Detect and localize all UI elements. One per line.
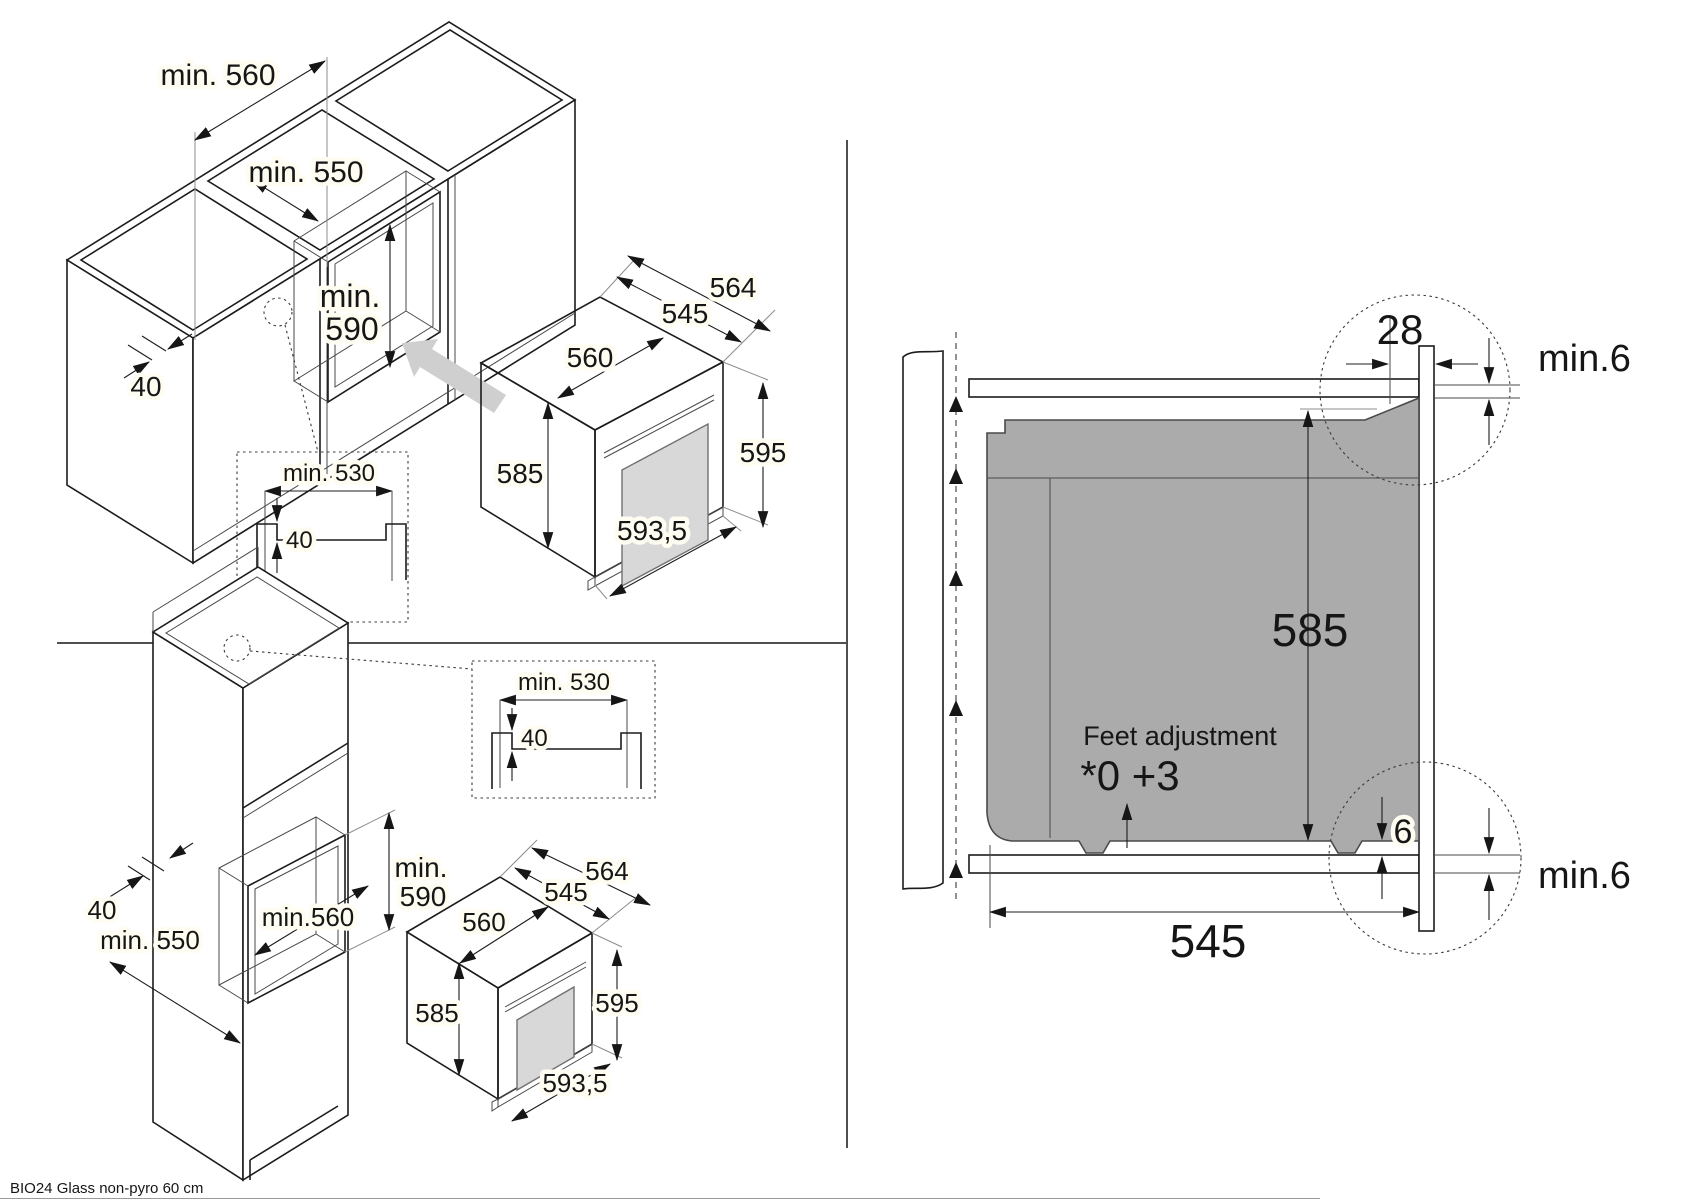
feet-adjustment-title: Feet adjustment <box>1083 721 1277 751</box>
dim-label-oven-width: 560 <box>462 907 505 937</box>
side-section-diagram: 28 min.6 585 Feet adjustment *0 +3 6 <box>903 295 1631 967</box>
worktop-shelf <box>969 379 1419 397</box>
oven-door-window <box>622 424 708 586</box>
wall-section <box>903 351 943 889</box>
up-arrow <box>949 396 963 412</box>
oven-front-frame-edge <box>1419 346 1434 931</box>
up-arrow <box>949 468 963 484</box>
dim-label-bottom-gap: 6 <box>1394 813 1413 851</box>
dim-label-top-clearance: min.6 <box>1538 338 1631 380</box>
extension-line <box>723 507 768 525</box>
dim-label-oven-body-height: 585 <box>415 998 458 1028</box>
page-footer: BIO24 Glass non-pyro 60 cm <box>0 1180 1320 1199</box>
under-counter-diagram: min. 560 min. 550 min. 590 40 min. 530 4 <box>67 22 786 622</box>
bottom-shelf <box>969 855 1419 873</box>
extension-line <box>345 810 395 835</box>
oven-door-corner <box>492 1099 498 1111</box>
up-arrow <box>949 700 963 716</box>
dim-label-niche-depth: min. 550 <box>248 156 363 189</box>
dim-label-column-niche-height-1: min. <box>395 852 448 883</box>
extension-line <box>723 362 768 380</box>
vent-channel-profile <box>492 733 641 789</box>
dim-label-oven-depth: 545 <box>544 877 587 907</box>
dim-label-body-depth: 545 <box>1170 915 1247 967</box>
dim-label-oven-front-height: 595 <box>740 437 787 468</box>
extension-line <box>595 585 607 599</box>
dim-label-oven-front-width: 593,5 <box>617 515 687 546</box>
vent-depth-label: 40 <box>521 725 548 752</box>
tall-cabinet <box>153 547 348 1180</box>
dim-label-oven-overall-width: 564 <box>585 856 628 886</box>
dim-label-oven-overall-width: 564 <box>710 272 757 303</box>
up-arrow <box>949 862 963 878</box>
dim-label-oven-depth: 545 <box>662 298 709 329</box>
column-diagram: min. 590 min.560 40 min. 550 min. 530 40 <box>88 547 655 1180</box>
up-arrow <box>949 570 963 586</box>
vent-width-label: min. 530 <box>518 669 610 696</box>
vent-detail-callout-column: min. 530 40 <box>472 661 655 798</box>
feet-adjustment-range: *0 +3 <box>1080 752 1179 799</box>
installation-diagram-page: min. 560 min. 550 min. 590 40 min. 530 4 <box>0 0 1697 1200</box>
dim-label-frame-offset: 28 <box>1377 306 1424 353</box>
dim-label-column-niche-width: min.560 <box>262 902 355 932</box>
extension-line <box>723 310 775 362</box>
extension-line <box>500 840 537 877</box>
oven-body-section <box>987 398 1419 853</box>
oven-door-corner <box>588 577 595 590</box>
dim-label-oven-body-height: 585 <box>497 458 544 489</box>
dim-label-cabinet-depth: min. 550 <box>100 925 200 955</box>
dim-label-niche-height-2: 590 <box>325 311 378 347</box>
diagram-svg: min. 560 min. 550 min. 590 40 min. 530 4 <box>0 0 1697 1200</box>
vent-channel-profile <box>257 524 406 580</box>
dim-label-oven-width: 560 <box>567 342 614 373</box>
dim-label-niche-height-1: min. <box>320 278 380 314</box>
extension-line <box>592 896 638 933</box>
vent-width-label: min. 530 <box>283 460 375 487</box>
dim-label-bottom-clearance: min.6 <box>1538 855 1631 897</box>
dim-label-body-height: 585 <box>1272 604 1349 656</box>
column-left-panel <box>153 632 243 1180</box>
dim-label-oven-front-height: 595 <box>595 988 638 1018</box>
dim-label-front-offset: 40 <box>130 371 161 402</box>
dim-label-column-niche-height-2: 590 <box>400 881 447 912</box>
extension-line <box>592 933 622 947</box>
vent-depth-label: 40 <box>286 527 313 554</box>
dim-label-column-front-offset: 40 <box>88 895 117 925</box>
dim-label-oven-front-width: 593,5 <box>542 1068 607 1098</box>
model-label: BIO24 Glass non-pyro 60 cm <box>10 1180 203 1197</box>
dim-label-niche-width: min. 560 <box>160 59 275 92</box>
